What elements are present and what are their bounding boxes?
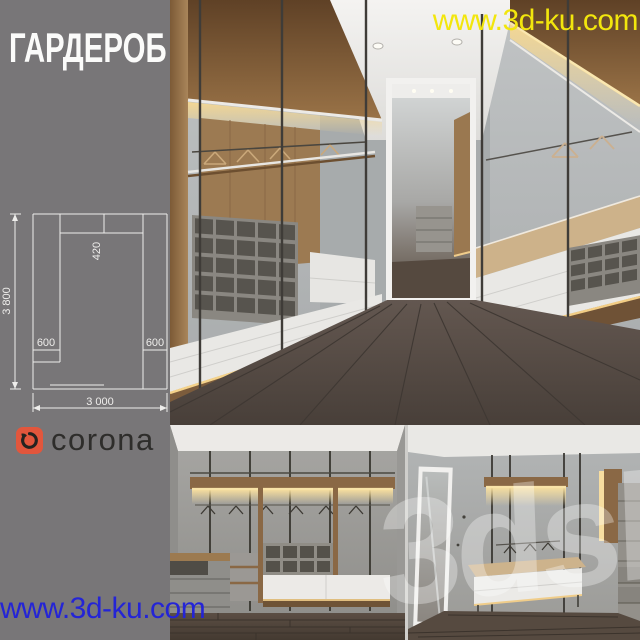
floor-plan-diagram: 3 800 420 600 600 3 000: [0, 205, 170, 417]
reflected-wood: [454, 112, 470, 256]
floor: [170, 613, 405, 640]
led-strip: [192, 490, 393, 504]
dim-left-depth: 600: [37, 337, 55, 349]
floor-plan-lines: [10, 214, 167, 412]
corona-logo: corona: [16, 422, 155, 458]
wood-shelf: [190, 477, 395, 489]
reflected-drawers: [416, 206, 452, 252]
cabinet-open-shelf: [170, 561, 208, 575]
mirror: [386, 78, 476, 304]
main-render: [170, 0, 640, 425]
dim-right-depth: 600: [146, 337, 164, 349]
dimension-labels: 3 800 420 600 600 3 000: [1, 242, 164, 408]
dimension-arrows: [12, 214, 167, 411]
corona-icon: [16, 427, 43, 454]
page: ГАРДЕРОБ 3 800 420 600 600 3 000: [0, 0, 640, 640]
dim-total-width: 3 000: [86, 396, 114, 408]
ceiling: [170, 425, 405, 451]
corona-swirl-icon: [19, 430, 40, 451]
corona-wordmark: corona: [51, 422, 155, 458]
page-title: ГАРДЕРОБ: [9, 24, 167, 72]
wood-divider: [258, 477, 263, 603]
watermark-bottom-left: www.3d-ku.com: [0, 592, 205, 626]
dim-top-depth: 420: [91, 242, 103, 260]
cabinet-wood-top: [170, 553, 230, 561]
bottom-left-render: [170, 425, 405, 640]
reflected-floor: [392, 258, 470, 298]
watermark-top: www.3d-ku.com: [433, 4, 638, 38]
dim-total-height: 3 800: [1, 287, 13, 315]
cubby-unit: [263, 543, 333, 575]
